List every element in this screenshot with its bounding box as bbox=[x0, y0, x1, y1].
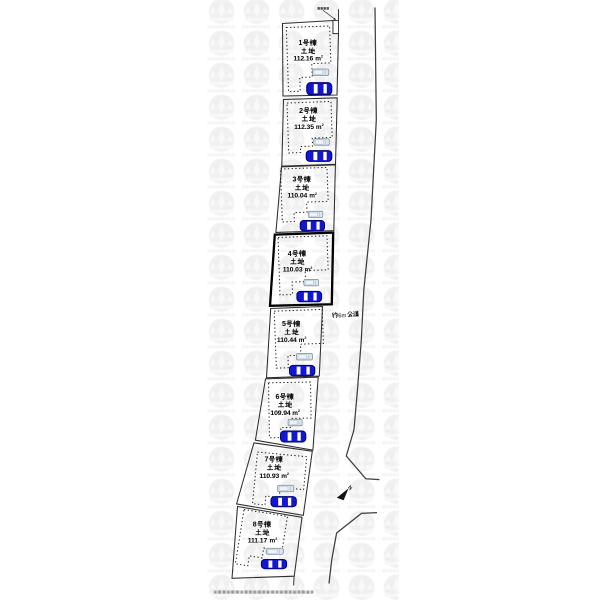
svg-text:110.03: 110.03 bbox=[283, 267, 303, 274]
svg-text:112.35: 112.35 bbox=[294, 124, 314, 131]
svg-text:2: 2 bbox=[287, 472, 289, 476]
svg-text:2: 2 bbox=[315, 192, 317, 196]
svg-text:111.17: 111.17 bbox=[248, 538, 268, 545]
svg-text:2: 2 bbox=[310, 266, 312, 270]
svg-text:8: 8 bbox=[253, 522, 257, 529]
svg-text:2: 2 bbox=[275, 537, 277, 541]
svg-text:6: 6 bbox=[275, 394, 279, 401]
svg-text:1: 1 bbox=[298, 40, 302, 47]
svg-text:2: 2 bbox=[304, 336, 306, 340]
svg-text:6m: 6m bbox=[338, 313, 347, 320]
svg-text:2: 2 bbox=[298, 409, 300, 413]
svg-text:2: 2 bbox=[321, 55, 323, 59]
svg-text:112.16: 112.16 bbox=[293, 55, 313, 62]
svg-text:7: 7 bbox=[264, 457, 268, 464]
svg-text:3: 3 bbox=[292, 177, 296, 184]
svg-text:109.94: 109.94 bbox=[270, 410, 291, 417]
svg-text:4: 4 bbox=[288, 251, 292, 258]
svg-text:110.93: 110.93 bbox=[259, 473, 279, 480]
svg-text:2: 2 bbox=[322, 123, 324, 127]
svg-text:5: 5 bbox=[282, 321, 286, 328]
svg-text:110.04: 110.04 bbox=[287, 193, 307, 200]
svg-text:110.44: 110.44 bbox=[277, 337, 297, 344]
svg-text:2: 2 bbox=[299, 108, 303, 115]
